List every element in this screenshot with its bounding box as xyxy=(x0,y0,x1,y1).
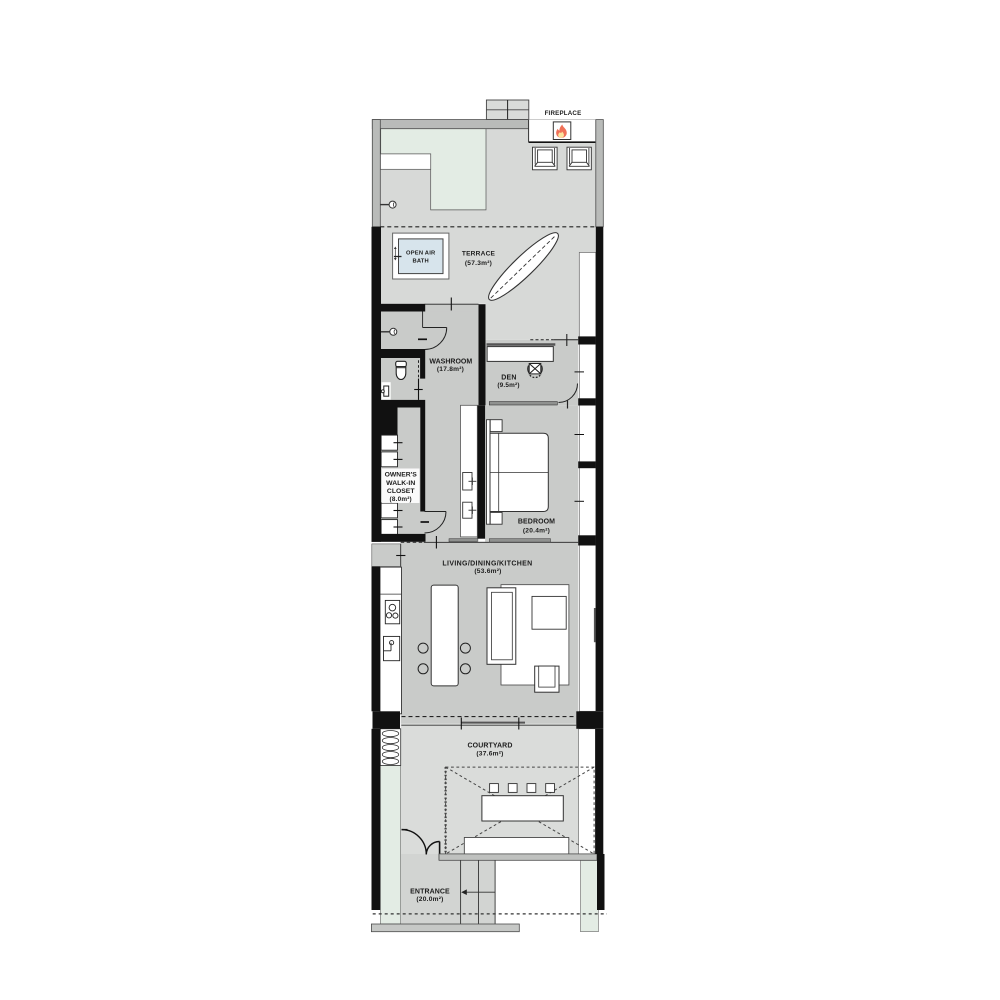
svg-text:(37.6m²): (37.6m²) xyxy=(476,751,503,758)
svg-text:(20.0m²): (20.0m²) xyxy=(416,896,443,903)
svg-text:FIREPLACE: FIREPLACE xyxy=(545,110,582,117)
svg-text:OPEN AIR: OPEN AIR xyxy=(406,251,436,257)
svg-text:COURTYARD: COURTYARD xyxy=(468,743,513,750)
svg-text:(9.5m²): (9.5m²) xyxy=(497,382,519,389)
svg-text:WASHROOM: WASHROOM xyxy=(429,358,472,365)
svg-text:DEN: DEN xyxy=(501,375,516,382)
svg-text:(17.8m²): (17.8m²) xyxy=(437,366,464,373)
svg-text:(53.6m²): (53.6m²) xyxy=(474,568,501,575)
svg-text:(20.4m²): (20.4m²) xyxy=(523,528,550,535)
svg-text:(8.0m²): (8.0m²) xyxy=(390,496,412,503)
svg-text:ENTRANCE: ENTRANCE xyxy=(410,889,450,896)
svg-text:WALK-IN: WALK-IN xyxy=(386,480,415,487)
svg-text:CLOSET: CLOSET xyxy=(387,488,415,495)
svg-text:OWNER'S: OWNER'S xyxy=(385,472,418,479)
svg-text:BEDROOM: BEDROOM xyxy=(518,518,555,525)
svg-text:BATH: BATH xyxy=(412,258,428,264)
svg-text:(57.3m²): (57.3m²) xyxy=(465,260,492,267)
svg-text:TERRACE: TERRACE xyxy=(462,251,496,258)
svg-text:LIVING/DINING/KITCHEN: LIVING/DINING/KITCHEN xyxy=(442,560,532,567)
